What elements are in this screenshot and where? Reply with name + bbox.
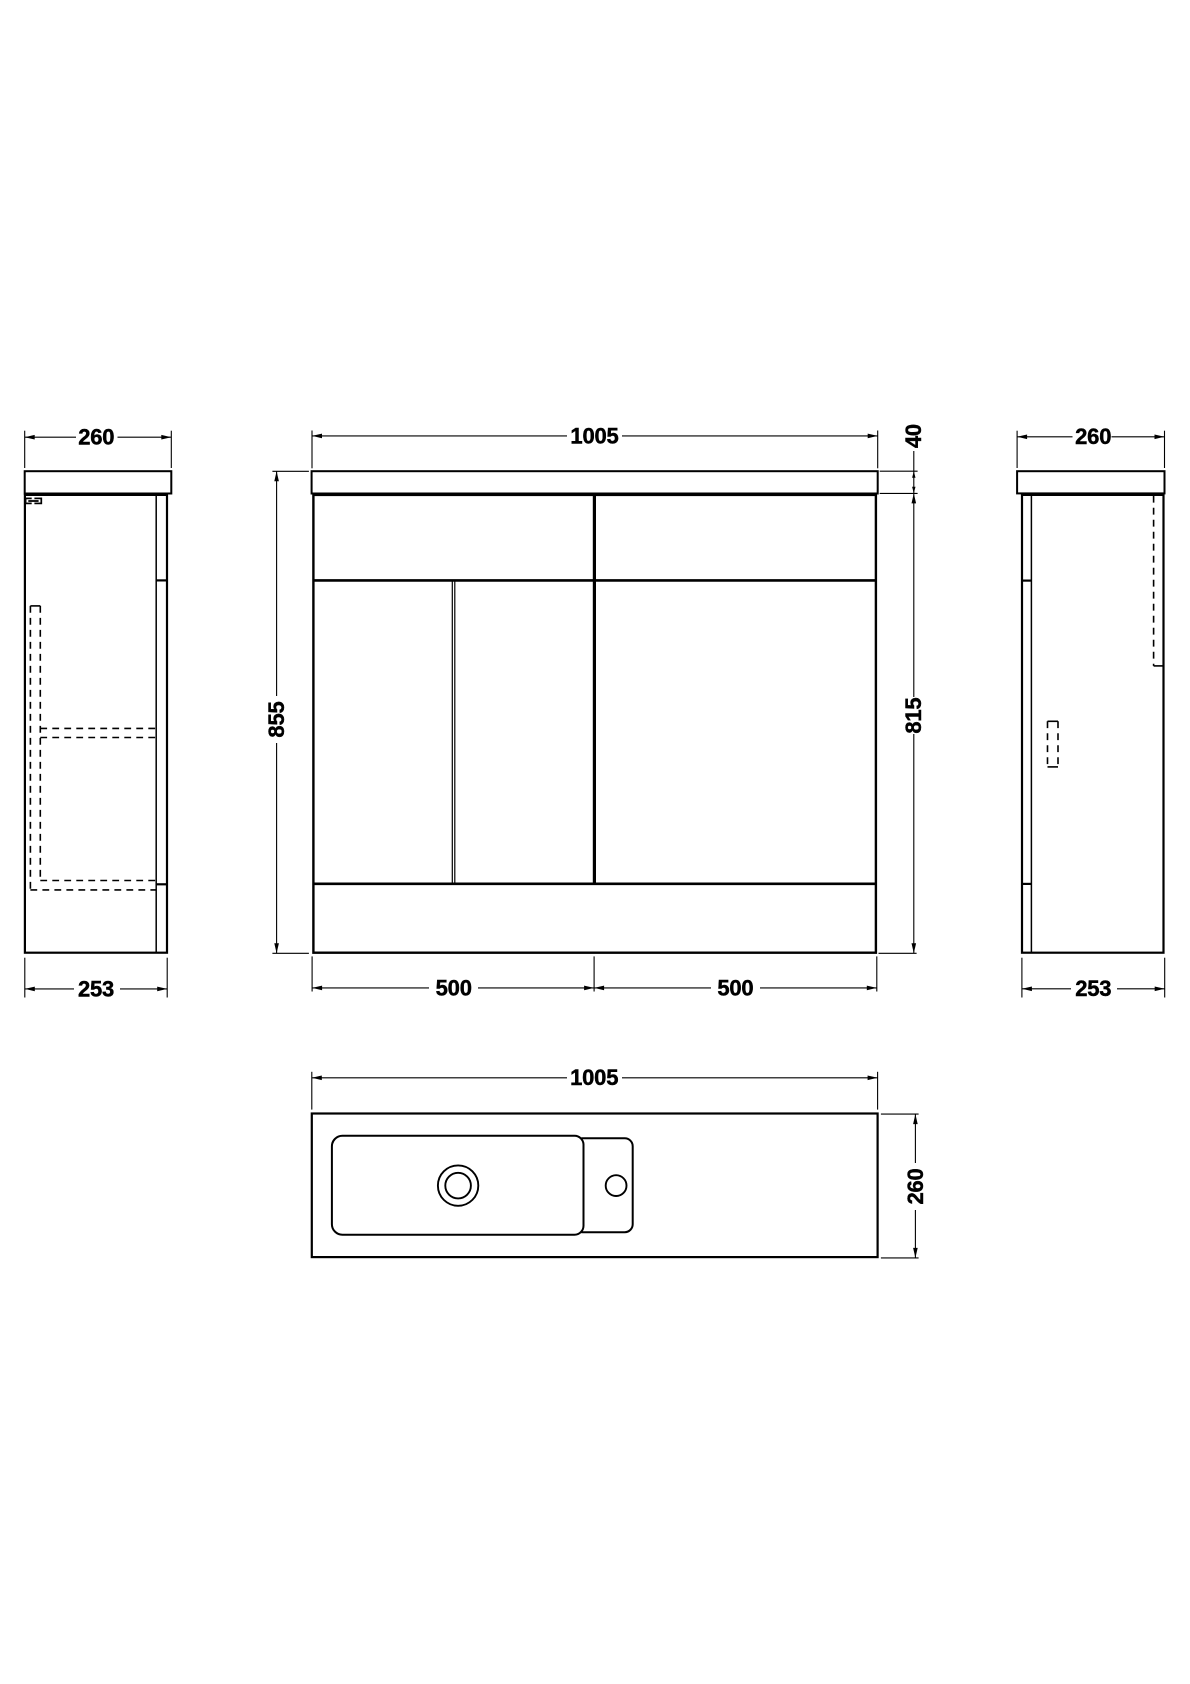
svg-text:260: 260 [903,1168,928,1204]
svg-text:1005: 1005 [570,423,618,448]
svg-text:500: 500 [717,975,753,1000]
svg-text:260: 260 [1075,424,1111,449]
svg-text:1005: 1005 [570,1065,618,1090]
svg-text:500: 500 [436,975,472,1000]
svg-text:253: 253 [1075,976,1111,1001]
svg-text:40: 40 [901,424,926,448]
svg-text:253: 253 [78,976,114,1001]
svg-text:260: 260 [78,425,114,450]
svg-text:855: 855 [264,701,289,737]
svg-text:815: 815 [901,698,926,734]
